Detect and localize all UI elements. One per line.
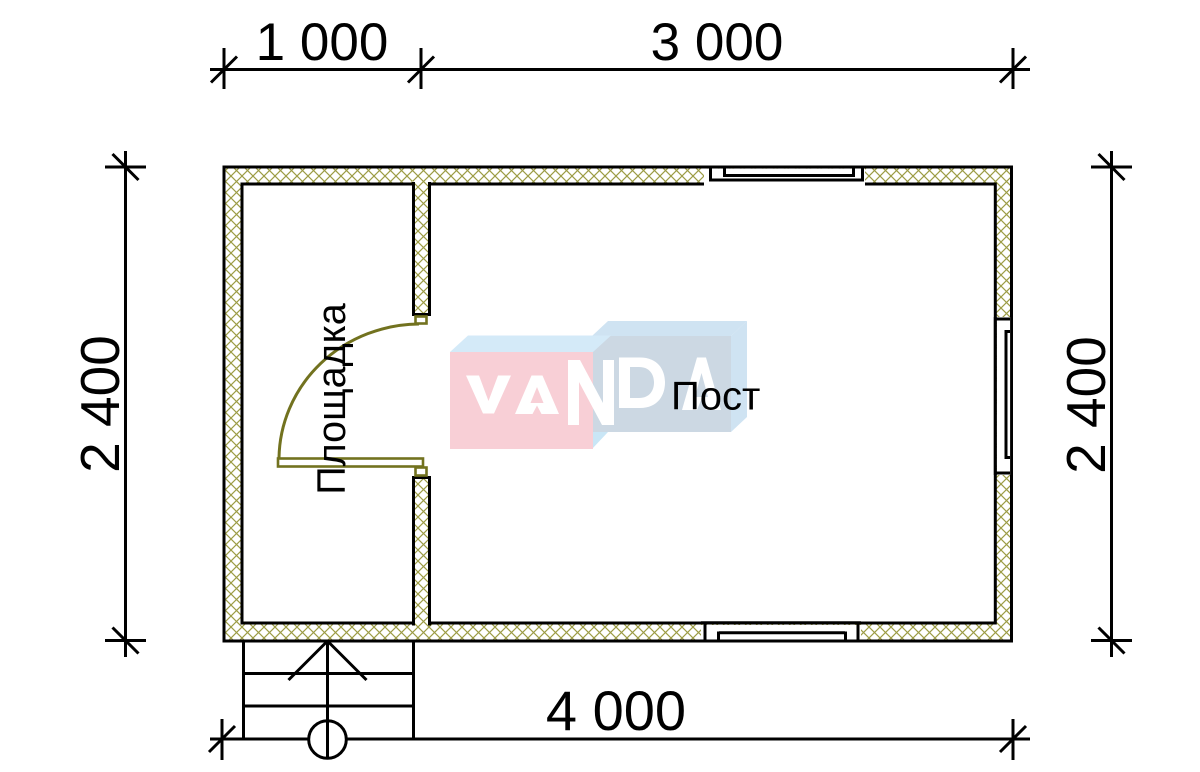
- svg-text:Площадка: Площадка: [310, 303, 354, 495]
- svg-text:4 000: 4 000: [546, 679, 686, 742]
- svg-text:1 000: 1 000: [256, 13, 389, 72]
- svg-text:Пост: Пост: [671, 375, 760, 419]
- svg-text:2 400: 2 400: [69, 335, 131, 473]
- svg-text:2 400: 2 400: [1055, 336, 1117, 474]
- svg-text:3 000: 3 000: [651, 13, 784, 72]
